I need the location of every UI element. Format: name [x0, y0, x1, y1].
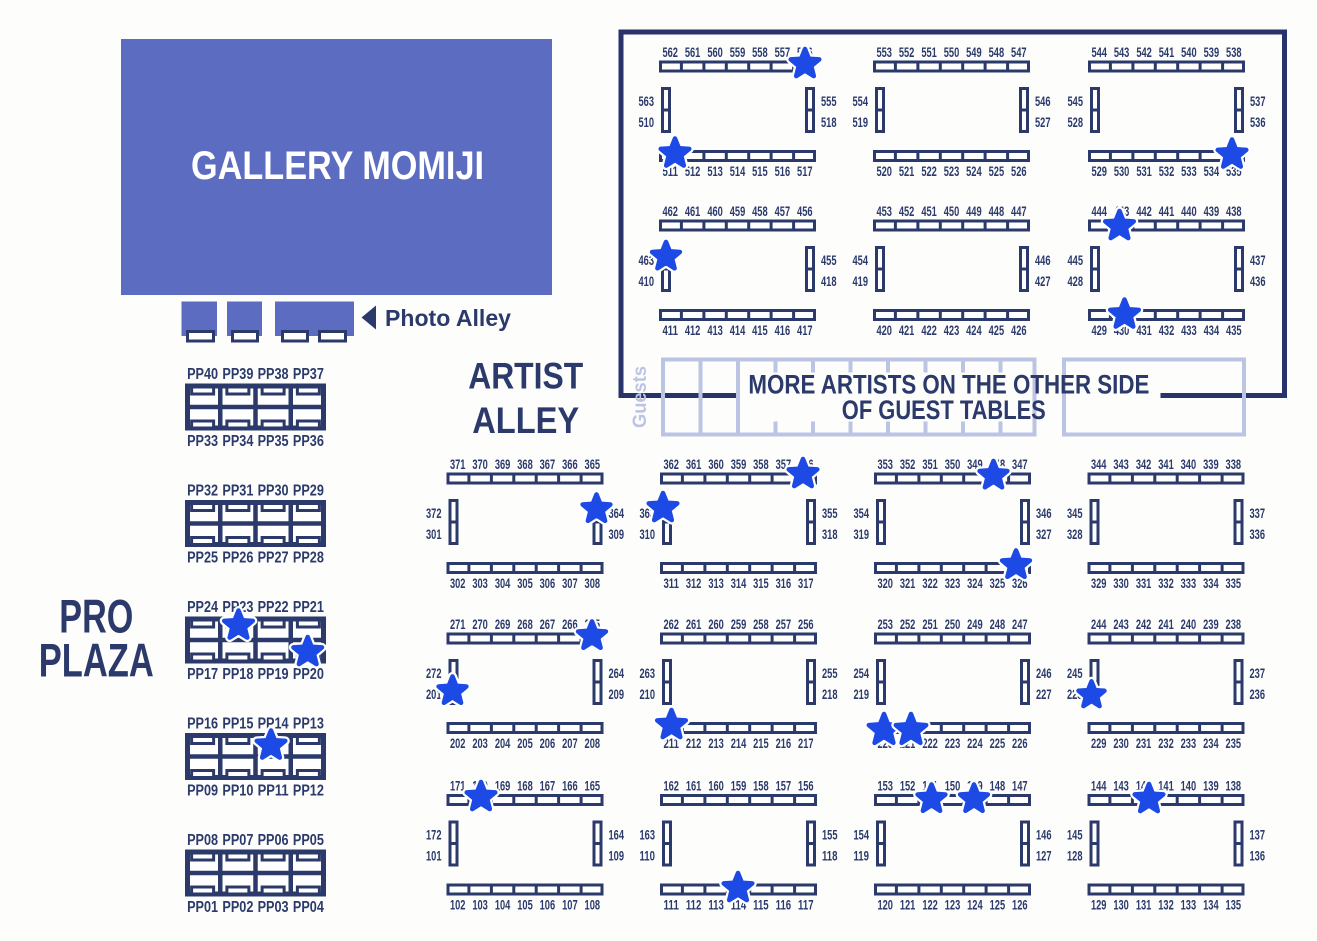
- svg-text:321: 321: [900, 575, 916, 591]
- svg-text:520: 520: [876, 163, 892, 179]
- svg-text:552: 552: [899, 44, 915, 60]
- svg-text:432: 432: [1159, 322, 1175, 338]
- svg-text:316: 316: [776, 575, 792, 591]
- svg-text:514: 514: [730, 163, 746, 179]
- svg-text:PP37: PP37: [293, 366, 324, 383]
- svg-text:165: 165: [585, 778, 601, 794]
- svg-text:PP33: PP33: [187, 433, 218, 450]
- svg-text:204: 204: [495, 735, 511, 751]
- svg-text:441: 441: [1159, 203, 1175, 219]
- svg-text:259: 259: [731, 616, 747, 632]
- svg-text:123: 123: [945, 896, 961, 912]
- svg-text:415: 415: [752, 322, 768, 338]
- svg-text:116: 116: [776, 896, 792, 912]
- svg-text:455: 455: [821, 252, 837, 268]
- svg-text:560: 560: [707, 44, 723, 60]
- svg-text:531: 531: [1136, 163, 1152, 179]
- svg-text:541: 541: [1159, 44, 1175, 60]
- svg-text:517: 517: [797, 163, 813, 179]
- svg-text:347: 347: [1012, 456, 1028, 472]
- svg-text:416: 416: [775, 322, 791, 338]
- svg-text:207: 207: [562, 735, 578, 751]
- svg-text:215: 215: [753, 735, 769, 751]
- svg-text:PP34: PP34: [222, 433, 253, 450]
- svg-text:155: 155: [822, 827, 838, 843]
- svg-text:164: 164: [609, 827, 625, 843]
- svg-text:120: 120: [877, 896, 893, 912]
- svg-text:117: 117: [798, 896, 814, 912]
- svg-text:307: 307: [562, 575, 578, 591]
- svg-text:456: 456: [797, 203, 813, 219]
- svg-text:PLAZA: PLAZA: [39, 634, 154, 687]
- svg-text:344: 344: [1091, 456, 1107, 472]
- svg-text:PP08: PP08: [187, 832, 218, 849]
- svg-text:172: 172: [426, 827, 442, 843]
- svg-text:231: 231: [1136, 735, 1152, 751]
- svg-text:562: 562: [662, 44, 678, 60]
- svg-text:111: 111: [663, 896, 679, 912]
- svg-text:332: 332: [1158, 575, 1174, 591]
- svg-text:525: 525: [989, 163, 1005, 179]
- svg-text:145: 145: [1067, 827, 1083, 843]
- svg-text:233: 233: [1181, 735, 1197, 751]
- svg-text:210: 210: [640, 686, 656, 702]
- svg-text:371: 371: [450, 456, 466, 472]
- svg-text:327: 327: [1036, 526, 1052, 542]
- svg-text:102: 102: [450, 896, 466, 912]
- svg-text:218: 218: [822, 686, 838, 702]
- svg-text:411: 411: [662, 322, 678, 338]
- svg-text:440: 440: [1181, 203, 1197, 219]
- svg-text:119: 119: [854, 847, 870, 863]
- svg-text:Guests: Guests: [630, 366, 651, 428]
- svg-text:561: 561: [685, 44, 701, 60]
- svg-text:239: 239: [1203, 616, 1219, 632]
- svg-text:ALLEY: ALLEY: [472, 400, 579, 441]
- svg-text:527: 527: [1035, 114, 1051, 130]
- svg-text:235: 235: [1226, 735, 1242, 751]
- svg-text:346: 346: [1036, 505, 1052, 521]
- svg-text:513: 513: [707, 163, 723, 179]
- svg-text:461: 461: [685, 203, 701, 219]
- svg-text:345: 345: [1067, 505, 1083, 521]
- svg-text:361: 361: [686, 456, 702, 472]
- svg-text:257: 257: [776, 616, 792, 632]
- svg-text:340: 340: [1181, 456, 1197, 472]
- svg-text:143: 143: [1113, 778, 1129, 794]
- svg-text:157: 157: [776, 778, 792, 794]
- svg-text:436: 436: [1250, 273, 1266, 289]
- svg-text:105: 105: [517, 896, 533, 912]
- svg-text:PP02: PP02: [222, 899, 253, 916]
- svg-text:PP39: PP39: [222, 366, 253, 383]
- svg-text:269: 269: [495, 616, 511, 632]
- svg-text:146: 146: [1036, 827, 1052, 843]
- svg-text:358: 358: [753, 456, 769, 472]
- svg-text:217: 217: [798, 735, 814, 751]
- svg-text:303: 303: [472, 575, 488, 591]
- svg-text:421: 421: [899, 322, 915, 338]
- svg-text:PP26: PP26: [222, 550, 253, 567]
- svg-text:368: 368: [517, 456, 533, 472]
- svg-text:268: 268: [517, 616, 533, 632]
- svg-text:147: 147: [1012, 778, 1028, 794]
- svg-text:205: 205: [517, 735, 533, 751]
- svg-text:335: 335: [1226, 575, 1242, 591]
- svg-text:154: 154: [854, 827, 870, 843]
- svg-text:132: 132: [1158, 896, 1174, 912]
- svg-text:518: 518: [821, 114, 837, 130]
- svg-text:555: 555: [821, 93, 837, 109]
- svg-text:166: 166: [562, 778, 578, 794]
- svg-text:537: 537: [1250, 93, 1266, 109]
- svg-text:314: 314: [731, 575, 747, 591]
- svg-text:545: 545: [1068, 93, 1084, 109]
- svg-text:PP16: PP16: [187, 716, 218, 733]
- svg-text:PP31: PP31: [222, 483, 253, 500]
- svg-text:133: 133: [1181, 896, 1197, 912]
- svg-text:258: 258: [753, 616, 769, 632]
- svg-text:420: 420: [876, 322, 892, 338]
- svg-text:108: 108: [585, 896, 601, 912]
- svg-text:516: 516: [775, 163, 791, 179]
- svg-text:270: 270: [472, 616, 488, 632]
- svg-text:410: 410: [639, 273, 655, 289]
- svg-text:304: 304: [495, 575, 511, 591]
- svg-text:261: 261: [686, 616, 702, 632]
- svg-text:PP10: PP10: [222, 783, 253, 800]
- svg-text:448: 448: [989, 203, 1005, 219]
- svg-text:225: 225: [990, 735, 1006, 751]
- svg-text:546: 546: [1035, 93, 1051, 109]
- svg-text:309: 309: [609, 526, 625, 542]
- svg-text:543: 543: [1114, 44, 1130, 60]
- svg-text:153: 153: [877, 778, 893, 794]
- svg-text:437: 437: [1250, 252, 1266, 268]
- svg-text:162: 162: [663, 778, 679, 794]
- svg-text:370: 370: [472, 456, 488, 472]
- svg-text:308: 308: [585, 575, 601, 591]
- svg-text:524: 524: [966, 163, 982, 179]
- svg-text:PP24: PP24: [187, 599, 218, 616]
- svg-text:372: 372: [426, 505, 442, 521]
- svg-text:334: 334: [1203, 575, 1219, 591]
- svg-text:337: 337: [1250, 505, 1266, 521]
- svg-text:457: 457: [775, 203, 791, 219]
- svg-text:203: 203: [472, 735, 488, 751]
- svg-text:256: 256: [798, 616, 814, 632]
- svg-text:168: 168: [517, 778, 533, 794]
- svg-text:554: 554: [853, 93, 869, 109]
- svg-text:255: 255: [822, 665, 838, 681]
- svg-text:305: 305: [517, 575, 533, 591]
- svg-text:PP06: PP06: [258, 832, 289, 849]
- svg-text:366: 366: [562, 456, 578, 472]
- svg-text:558: 558: [752, 44, 768, 60]
- svg-text:140: 140: [1181, 778, 1197, 794]
- svg-text:453: 453: [876, 203, 892, 219]
- svg-text:PP35: PP35: [258, 433, 289, 450]
- svg-text:134: 134: [1203, 896, 1219, 912]
- svg-text:343: 343: [1113, 456, 1129, 472]
- svg-text:510: 510: [639, 114, 655, 130]
- svg-text:249: 249: [967, 616, 983, 632]
- svg-text:434: 434: [1204, 322, 1220, 338]
- svg-text:206: 206: [540, 735, 556, 751]
- svg-text:438: 438: [1226, 203, 1242, 219]
- svg-text:451: 451: [921, 203, 937, 219]
- svg-text:350: 350: [945, 456, 961, 472]
- svg-text:PP04: PP04: [293, 899, 324, 916]
- svg-text:163: 163: [640, 827, 656, 843]
- svg-text:PP36: PP36: [293, 433, 324, 450]
- svg-text:323: 323: [945, 575, 961, 591]
- svg-text:112: 112: [686, 896, 702, 912]
- svg-text:131: 131: [1136, 896, 1152, 912]
- svg-text:536: 536: [1250, 114, 1266, 130]
- svg-text:158: 158: [753, 778, 769, 794]
- svg-text:547: 547: [1011, 44, 1027, 60]
- svg-text:262: 262: [663, 616, 679, 632]
- svg-text:331: 331: [1136, 575, 1152, 591]
- svg-text:156: 156: [798, 778, 814, 794]
- svg-text:462: 462: [662, 203, 678, 219]
- svg-text:248: 248: [990, 616, 1006, 632]
- svg-text:109: 109: [609, 847, 625, 863]
- svg-text:127: 127: [1036, 847, 1052, 863]
- svg-text:250: 250: [945, 616, 961, 632]
- svg-text:452: 452: [899, 203, 915, 219]
- svg-text:320: 320: [877, 575, 893, 591]
- svg-text:319: 319: [854, 526, 870, 542]
- svg-text:311: 311: [663, 575, 679, 591]
- svg-text:ARTIST: ARTIST: [468, 355, 583, 396]
- svg-text:542: 542: [1136, 44, 1152, 60]
- svg-text:110: 110: [640, 847, 656, 863]
- svg-text:414: 414: [730, 322, 746, 338]
- svg-text:322: 322: [922, 575, 938, 591]
- svg-text:412: 412: [685, 322, 701, 338]
- svg-text:PP18: PP18: [222, 666, 253, 683]
- svg-text:124: 124: [967, 896, 983, 912]
- svg-text:139: 139: [1203, 778, 1219, 794]
- svg-text:209: 209: [609, 686, 625, 702]
- svg-text:129: 129: [1091, 896, 1107, 912]
- svg-text:427: 427: [1035, 273, 1051, 289]
- svg-text:135: 135: [1226, 896, 1242, 912]
- svg-text:353: 353: [877, 456, 893, 472]
- svg-text:338: 338: [1226, 456, 1242, 472]
- svg-text:522: 522: [921, 163, 937, 179]
- svg-text:413: 413: [707, 322, 723, 338]
- svg-text:253: 253: [877, 616, 893, 632]
- svg-text:236: 236: [1250, 686, 1266, 702]
- svg-text:544: 544: [1091, 44, 1107, 60]
- svg-text:417: 417: [797, 322, 813, 338]
- svg-text:103: 103: [472, 896, 488, 912]
- svg-text:540: 540: [1181, 44, 1197, 60]
- svg-text:530: 530: [1114, 163, 1130, 179]
- svg-text:118: 118: [822, 847, 838, 863]
- svg-text:419: 419: [853, 273, 869, 289]
- svg-text:433: 433: [1181, 322, 1197, 338]
- svg-text:263: 263: [640, 665, 656, 681]
- svg-text:429: 429: [1091, 322, 1107, 338]
- svg-text:PP21: PP21: [293, 599, 324, 616]
- svg-text:521: 521: [899, 163, 915, 179]
- svg-text:125: 125: [990, 896, 1006, 912]
- svg-text:336: 336: [1250, 526, 1266, 542]
- svg-text:152: 152: [900, 778, 916, 794]
- svg-text:PP20: PP20: [293, 666, 324, 683]
- svg-text:324: 324: [967, 575, 983, 591]
- svg-text:126: 126: [1012, 896, 1028, 912]
- svg-text:446: 446: [1035, 252, 1051, 268]
- svg-text:317: 317: [798, 575, 814, 591]
- svg-text:330: 330: [1113, 575, 1129, 591]
- svg-text:238: 238: [1226, 616, 1242, 632]
- svg-text:PP12: PP12: [293, 783, 324, 800]
- svg-text:208: 208: [585, 735, 601, 751]
- svg-text:360: 360: [708, 456, 724, 472]
- svg-text:PP09: PP09: [187, 783, 218, 800]
- svg-text:431: 431: [1136, 322, 1152, 338]
- svg-text:365: 365: [585, 456, 601, 472]
- svg-text:136: 136: [1250, 847, 1266, 863]
- svg-text:459: 459: [730, 203, 746, 219]
- svg-text:424: 424: [966, 322, 982, 338]
- svg-text:PP13: PP13: [293, 716, 324, 733]
- svg-text:539: 539: [1204, 44, 1220, 60]
- svg-text:551: 551: [921, 44, 937, 60]
- svg-text:422: 422: [921, 322, 937, 338]
- svg-text:519: 519: [853, 114, 869, 130]
- svg-text:PP25: PP25: [187, 550, 218, 567]
- svg-text:247: 247: [1012, 616, 1028, 632]
- svg-text:PP22: PP22: [258, 599, 289, 616]
- svg-text:354: 354: [854, 505, 870, 521]
- svg-text:553: 553: [876, 44, 892, 60]
- svg-text:PP05: PP05: [293, 832, 324, 849]
- svg-text:267: 267: [540, 616, 556, 632]
- svg-text:302: 302: [450, 575, 466, 591]
- svg-text:439: 439: [1204, 203, 1220, 219]
- svg-text:529: 529: [1091, 163, 1107, 179]
- svg-text:106: 106: [540, 896, 556, 912]
- svg-text:351: 351: [922, 456, 938, 472]
- svg-text:264: 264: [609, 665, 625, 681]
- svg-text:160: 160: [708, 778, 724, 794]
- svg-text:232: 232: [1158, 735, 1174, 751]
- svg-text:318: 318: [822, 526, 838, 542]
- svg-text:550: 550: [944, 44, 960, 60]
- svg-text:PP30: PP30: [258, 483, 289, 500]
- svg-text:447: 447: [1011, 203, 1027, 219]
- svg-text:224: 224: [967, 735, 983, 751]
- svg-text:PP07: PP07: [222, 832, 253, 849]
- svg-text:418: 418: [821, 273, 837, 289]
- svg-text:260: 260: [708, 616, 724, 632]
- svg-text:559: 559: [730, 44, 746, 60]
- svg-text:167: 167: [540, 778, 556, 794]
- svg-text:227: 227: [1036, 686, 1052, 702]
- svg-text:450: 450: [944, 203, 960, 219]
- svg-text:528: 528: [1068, 114, 1084, 130]
- svg-text:243: 243: [1113, 616, 1129, 632]
- svg-text:444: 444: [1091, 203, 1107, 219]
- svg-text:523: 523: [944, 163, 960, 179]
- svg-text:534: 534: [1204, 163, 1220, 179]
- svg-text:315: 315: [753, 575, 769, 591]
- svg-text:226: 226: [1012, 735, 1028, 751]
- svg-text:122: 122: [922, 896, 938, 912]
- svg-text:Photo Alley: Photo Alley: [385, 305, 511, 331]
- svg-text:229: 229: [1091, 735, 1107, 751]
- svg-text:PP38: PP38: [258, 366, 289, 383]
- svg-text:214: 214: [731, 735, 747, 751]
- svg-text:355: 355: [822, 505, 838, 521]
- svg-text:312: 312: [686, 575, 702, 591]
- svg-text:PP27: PP27: [258, 550, 289, 567]
- svg-text:115: 115: [753, 896, 769, 912]
- svg-text:342: 342: [1136, 456, 1152, 472]
- svg-text:PP17: PP17: [187, 666, 218, 683]
- svg-text:526: 526: [1011, 163, 1027, 179]
- svg-text:107: 107: [562, 896, 578, 912]
- svg-text:130: 130: [1113, 896, 1129, 912]
- svg-text:148: 148: [990, 778, 1006, 794]
- svg-text:329: 329: [1091, 575, 1107, 591]
- svg-text:242: 242: [1136, 616, 1152, 632]
- svg-text:533: 533: [1181, 163, 1197, 179]
- svg-text:301: 301: [426, 526, 442, 542]
- svg-text:137: 137: [1250, 827, 1266, 843]
- svg-text:328: 328: [1067, 526, 1083, 542]
- svg-text:538: 538: [1226, 44, 1242, 60]
- svg-text:216: 216: [776, 735, 792, 751]
- svg-text:532: 532: [1159, 163, 1175, 179]
- svg-text:159: 159: [731, 778, 747, 794]
- svg-text:212: 212: [686, 735, 702, 751]
- svg-text:246: 246: [1036, 665, 1052, 681]
- svg-text:423: 423: [944, 322, 960, 338]
- svg-text:237: 237: [1250, 665, 1266, 681]
- svg-text:454: 454: [853, 252, 869, 268]
- svg-text:339: 339: [1203, 456, 1219, 472]
- svg-text:313: 313: [708, 575, 724, 591]
- svg-text:352: 352: [900, 456, 916, 472]
- svg-text:425: 425: [989, 322, 1005, 338]
- svg-text:445: 445: [1068, 252, 1084, 268]
- svg-text:PP03: PP03: [258, 899, 289, 916]
- svg-text:369: 369: [495, 456, 511, 472]
- svg-text:138: 138: [1226, 778, 1242, 794]
- svg-text:310: 310: [640, 526, 656, 542]
- svg-text:PP28: PP28: [293, 550, 324, 567]
- svg-text:435: 435: [1226, 322, 1242, 338]
- svg-text:101: 101: [426, 847, 442, 863]
- svg-text:161: 161: [686, 778, 702, 794]
- svg-text:548: 548: [989, 44, 1005, 60]
- svg-text:234: 234: [1203, 735, 1219, 751]
- svg-text:244: 244: [1091, 616, 1107, 632]
- svg-text:458: 458: [752, 203, 768, 219]
- svg-text:254: 254: [854, 665, 870, 681]
- svg-text:460: 460: [707, 203, 723, 219]
- svg-text:113: 113: [708, 896, 724, 912]
- svg-text:PP01: PP01: [187, 899, 218, 916]
- svg-text:428: 428: [1068, 273, 1084, 289]
